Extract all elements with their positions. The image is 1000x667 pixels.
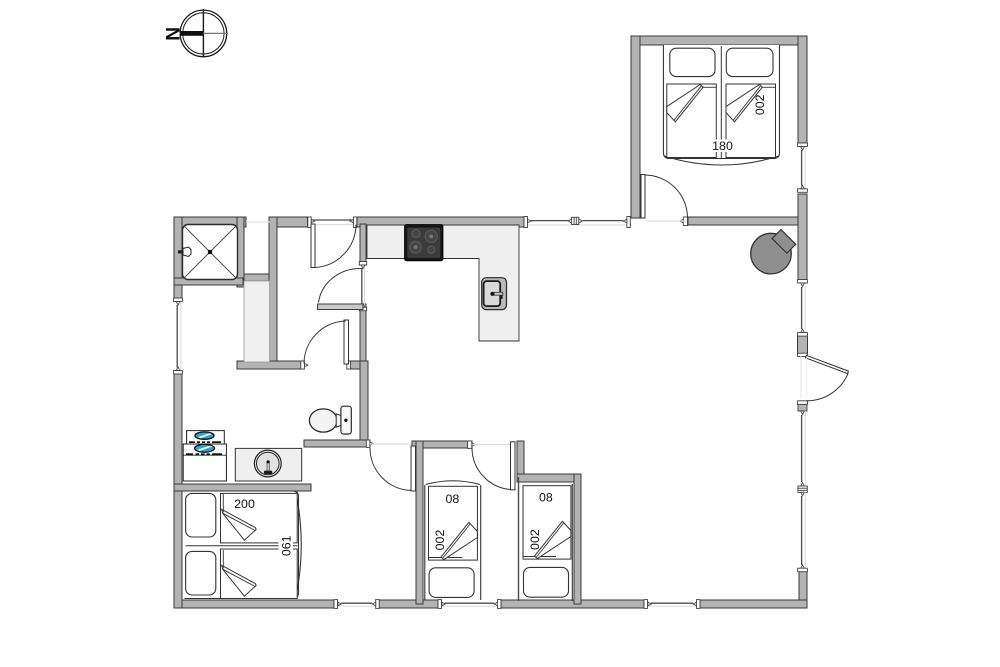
svg-text:N: N	[161, 27, 182, 41]
svg-text:002: 002	[528, 529, 542, 550]
svg-text:180: 180	[712, 139, 733, 153]
svg-text:08: 08	[446, 492, 460, 506]
svg-text:002: 002	[433, 530, 447, 551]
svg-text:08: 08	[539, 491, 553, 505]
svg-text:200: 200	[234, 497, 255, 511]
svg-text:002: 002	[753, 94, 767, 115]
svg-text:061: 061	[280, 535, 294, 556]
